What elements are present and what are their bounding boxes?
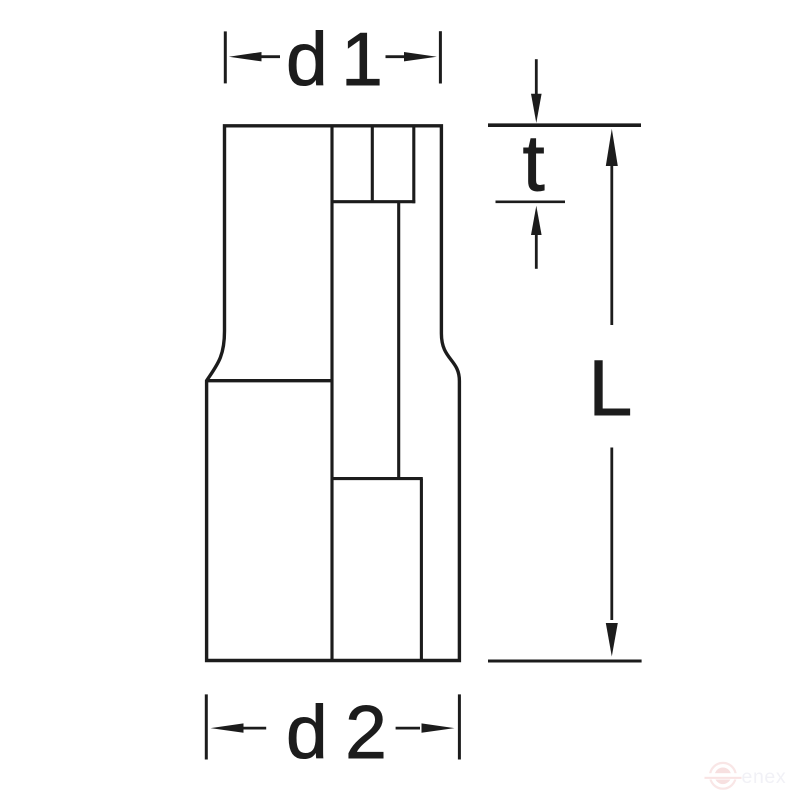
svg-text:d: d <box>286 17 328 101</box>
svg-text:1: 1 <box>341 17 383 101</box>
svg-text:L: L <box>588 343 632 432</box>
svg-text:enex: enex <box>742 766 787 788</box>
svg-text:d: d <box>286 690 328 774</box>
svg-text:t: t <box>522 119 544 208</box>
svg-text:2: 2 <box>345 690 387 774</box>
